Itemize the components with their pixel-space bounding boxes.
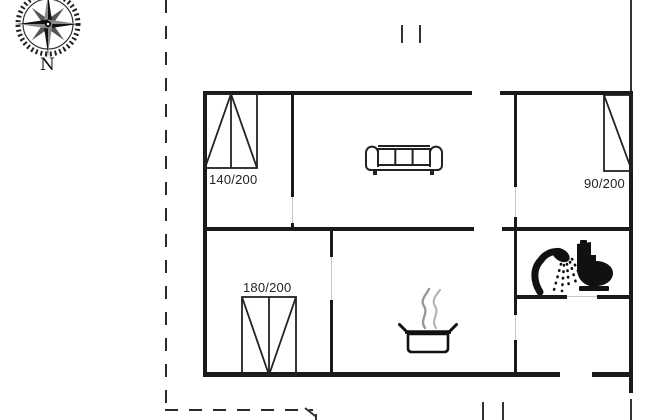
wall-bedroom1-right-upper bbox=[291, 95, 294, 197]
bed-size-label: 90/200 bbox=[584, 176, 625, 191]
boundary-solid-right-top bbox=[630, 0, 632, 91]
wall-corridor-mid bbox=[514, 217, 517, 315]
wall-bedroom3-right-upper bbox=[330, 231, 333, 257]
cooking-pot-icon bbox=[398, 286, 460, 356]
gate-marks-icon bbox=[419, 25, 421, 43]
compass-rose-icon bbox=[10, 0, 86, 62]
wall-bathroom-top bbox=[502, 227, 633, 231]
bed-icon bbox=[241, 296, 297, 376]
steam-icon bbox=[423, 289, 440, 328]
door-bedroom1 bbox=[292, 197, 293, 223]
gate-marks-icon bbox=[401, 25, 403, 43]
wall-mid-horizontal-left bbox=[203, 227, 474, 231]
bed-size-label: 180/200 bbox=[243, 280, 291, 295]
bed-icon bbox=[204, 93, 258, 169]
bed-icon bbox=[603, 94, 633, 172]
wall-corridor-lower bbox=[514, 340, 517, 375]
floor-plan: N 140/200 180/200 90/200 bbox=[0, 0, 650, 420]
boundary-dashed-left bbox=[165, 0, 167, 409]
sofa-icon bbox=[364, 139, 444, 179]
bed-size-label: 140/200 bbox=[209, 172, 257, 187]
boundary-dashed-bottom bbox=[165, 409, 313, 411]
compass-north-label: N bbox=[40, 55, 55, 75]
door-utility bbox=[515, 315, 516, 340]
boundary-corner-stub bbox=[315, 414, 317, 420]
gate-marks-icon bbox=[482, 402, 484, 420]
toilet-icon bbox=[572, 240, 616, 292]
door-bathroom bbox=[567, 296, 597, 297]
boundary-solid-right-bottom bbox=[630, 399, 632, 420]
wall-corridor-upper bbox=[514, 95, 517, 187]
door-bedroom3 bbox=[331, 257, 332, 300]
door-bedroom2 bbox=[515, 187, 516, 217]
wall-bathroom-bottom-right bbox=[597, 295, 633, 299]
wall-bedroom3-right-lower bbox=[330, 300, 333, 372]
wall-outer-bottom-right bbox=[592, 372, 633, 377]
gate-marks-icon bbox=[502, 402, 504, 420]
